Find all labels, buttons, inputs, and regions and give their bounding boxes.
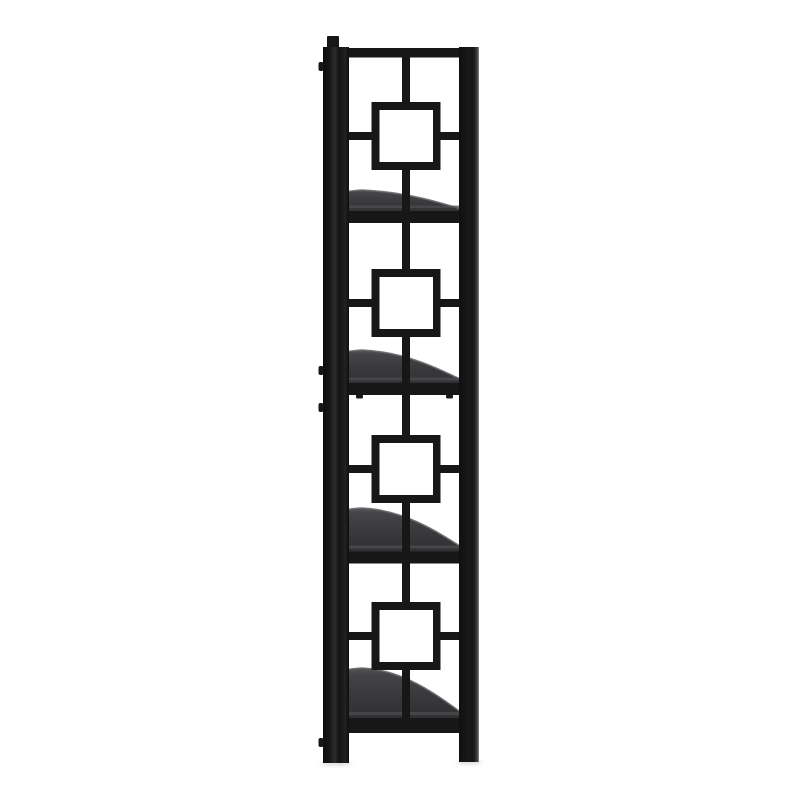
screw-nub-under-rail	[356, 395, 363, 399]
shelf-edge-strip-2	[334, 378, 468, 381]
square-right-arm	[441, 465, 460, 473]
square-inner	[380, 110, 434, 162]
screw-nub	[319, 62, 324, 71]
top-rail	[329, 48, 473, 58]
screw-nub-under-rail	[446, 395, 453, 399]
square-left-arm	[349, 465, 372, 473]
square-left-arm	[349, 132, 372, 140]
square-left-arm	[349, 299, 372, 307]
shelf-edge-strip-4	[334, 712, 468, 715]
screw-nub	[319, 366, 324, 375]
bottom-rail	[329, 718, 477, 733]
square-right-arm	[441, 632, 460, 640]
left-post	[323, 47, 349, 763]
square-inner	[380, 610, 434, 662]
screw-nub	[319, 738, 324, 747]
square-inner	[380, 277, 434, 329]
square-right-arm	[441, 132, 460, 140]
screw-nub	[319, 403, 324, 412]
square-left-arm	[349, 632, 372, 640]
product-photo: Side profile of a tall narrow black meta…	[0, 0, 800, 800]
shelf-edge-strip-3	[334, 546, 468, 549]
bookcase-side-view-image	[0, 0, 800, 800]
square-right-arm	[441, 299, 460, 307]
shelf-edge-strip-1	[334, 206, 468, 209]
square-inner	[380, 443, 434, 495]
right-post	[459, 47, 479, 762]
